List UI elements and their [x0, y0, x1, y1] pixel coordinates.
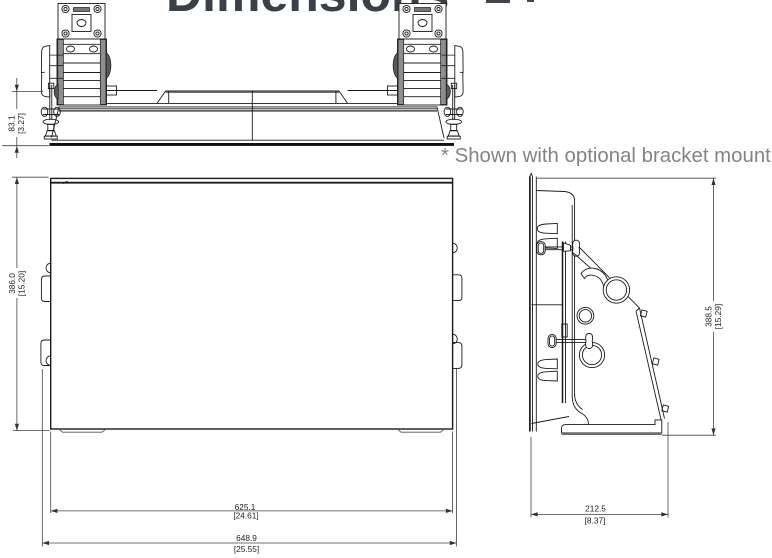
svg-text:386.0: 386.0	[7, 273, 17, 294]
svg-text:[3.27]: [3.27]	[16, 113, 26, 134]
svg-text:[24.61]: [24.61]	[233, 511, 258, 521]
svg-text:648.9: 648.9	[236, 533, 257, 543]
svg-text:[8.37]: [8.37]	[585, 515, 606, 525]
svg-text:83.1: 83.1	[7, 115, 17, 132]
svg-text:[25.55]: [25.55]	[234, 544, 259, 554]
svg-text:[15.20]: [15.20]	[17, 271, 27, 296]
svg-text:[15.29]: [15.29]	[713, 304, 723, 329]
svg-text:212.5: 212.5	[585, 503, 606, 513]
svg-text:388.5: 388.5	[704, 306, 714, 327]
